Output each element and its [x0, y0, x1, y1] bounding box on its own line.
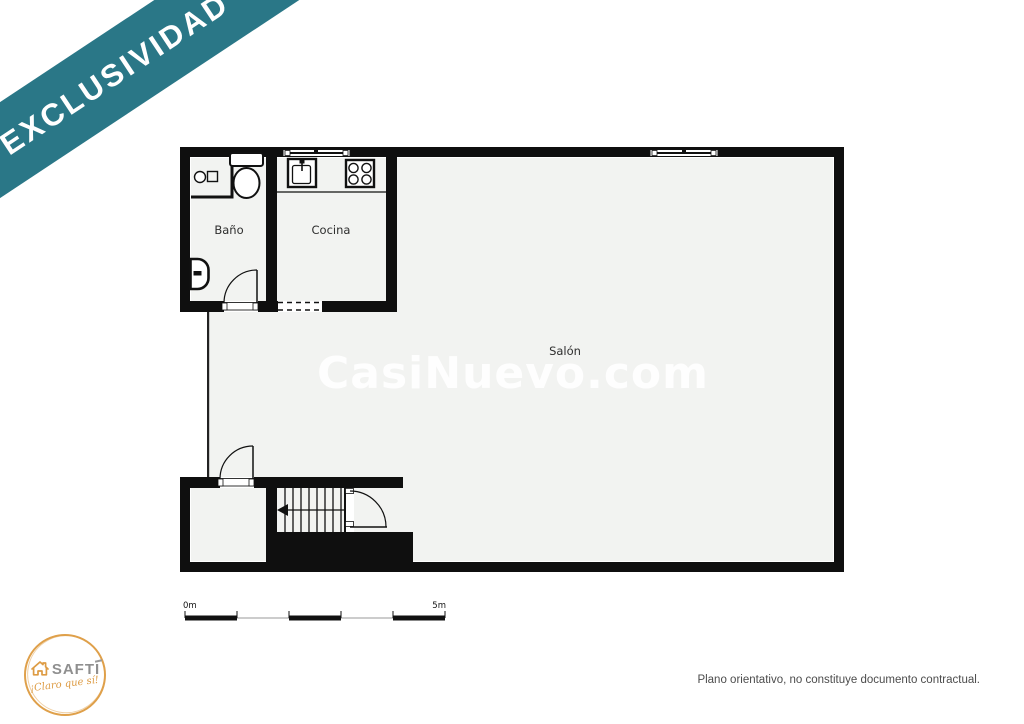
floorplan-svg: CasiNuevo.com Baño Cocina Salón 0m 5m	[0, 0, 1024, 724]
stove-icon	[346, 160, 374, 187]
disclaimer-text: Plano orientativo, no constituye documen…	[697, 674, 980, 686]
room-edge-line	[207, 312, 209, 477]
kitchen-opening-dashed	[278, 301, 322, 312]
window-icon	[650, 150, 718, 157]
toilet-icon	[230, 153, 263, 198]
kitchen-sink-icon	[288, 159, 316, 187]
bidet-icon	[191, 259, 209, 289]
scale-label-start: 0m	[183, 601, 197, 611]
window-icon	[283, 150, 350, 157]
room-label-cocina: Cocina	[312, 223, 351, 237]
room-label-salon: Salón	[549, 344, 581, 358]
storage-room-floor	[191, 488, 266, 561]
scale-bar: 0m 5m	[183, 601, 446, 618]
house-icon	[30, 660, 50, 678]
scale-label-end: 5m	[432, 601, 446, 611]
room-label-bano: Baño	[214, 223, 243, 237]
watermark-text: CasiNuevo.com	[317, 348, 709, 399]
safti-logo: SAFTI ¡Claro que sí!	[24, 634, 106, 716]
